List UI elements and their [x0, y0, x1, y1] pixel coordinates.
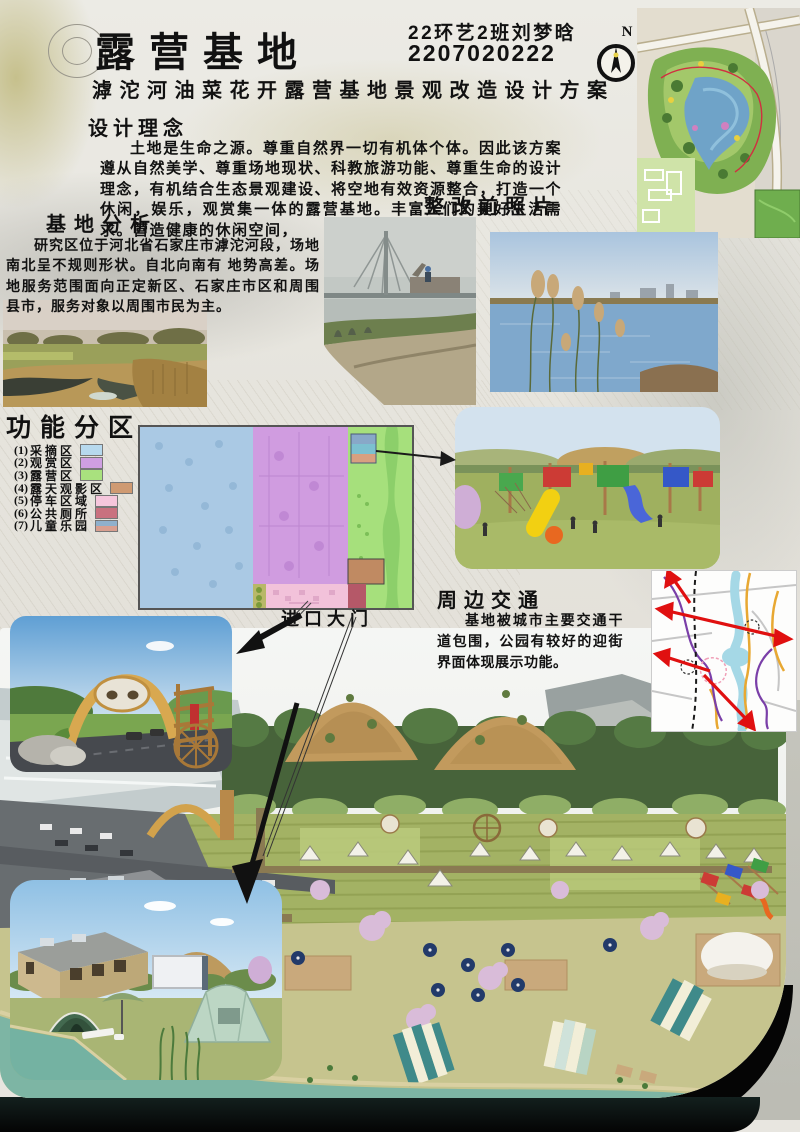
student-id: 2207020222: [408, 40, 556, 67]
entrance-gate-label: 进口大门: [281, 605, 373, 631]
traffic-map-image: [652, 571, 796, 731]
photo-reeds-lake-before: [490, 232, 718, 392]
section-heading-site-analysis: 基地分析: [46, 208, 158, 237]
functional-zones-list: (1)采摘区(2)观赏区(3)露营区(4)露天观影区(5)停车区域(6)公共厕所…: [14, 444, 194, 532]
legend-color-swatch: [95, 495, 118, 507]
traffic-text: 基地被城市主要交通干道包围，公园有较好的迎街界面体现展示功能。: [437, 611, 623, 674]
photo-bridge-before: [324, 217, 476, 405]
legend-color-swatch: [80, 457, 103, 469]
render-bottom-shadow: [0, 1097, 760, 1132]
section-heading-design-concept: 设计理念: [88, 112, 188, 141]
legend-item: (7)儿童乐园: [14, 520, 194, 533]
north-label: N: [616, 24, 638, 41]
page-title: 露营基地: [95, 20, 311, 78]
site-analysis-text: 研究区位于河北省石家庄市滹沱河段，场地南北呈不规则形状。自北向南有 地势高差。场…: [6, 237, 320, 318]
north-indicator: N: [594, 24, 638, 90]
playground-render-image: [455, 407, 720, 569]
section-heading-traffic: 周边交通: [437, 584, 545, 613]
masterplan-image: [637, 8, 800, 238]
legend-color-swatch: [95, 507, 118, 519]
entrance-gate-render-image: [10, 616, 232, 772]
legend-color-swatch: [110, 482, 133, 494]
design-poster: 露营基地 22环艺2班刘梦晗 2207020222 滹沱河油菜花开露营基地景观改…: [0, 0, 800, 1132]
project-subtitle: 滹沱河油菜花开露营基地景观改造设计方案: [92, 74, 615, 103]
compass-icon: [594, 41, 638, 85]
legend-item-label: 儿童乐园: [30, 517, 90, 534]
camping-area-render-image: [10, 880, 282, 1080]
legend-color-swatch: [95, 520, 118, 532]
legend-item-number: (7): [14, 518, 28, 533]
section-heading-functional-zones: 功能分区: [6, 408, 142, 444]
bg-sketch-circle-inner: [62, 37, 92, 65]
legend-color-swatch: [80, 444, 103, 456]
section-heading-before-photos: 整改前照片: [424, 190, 559, 219]
